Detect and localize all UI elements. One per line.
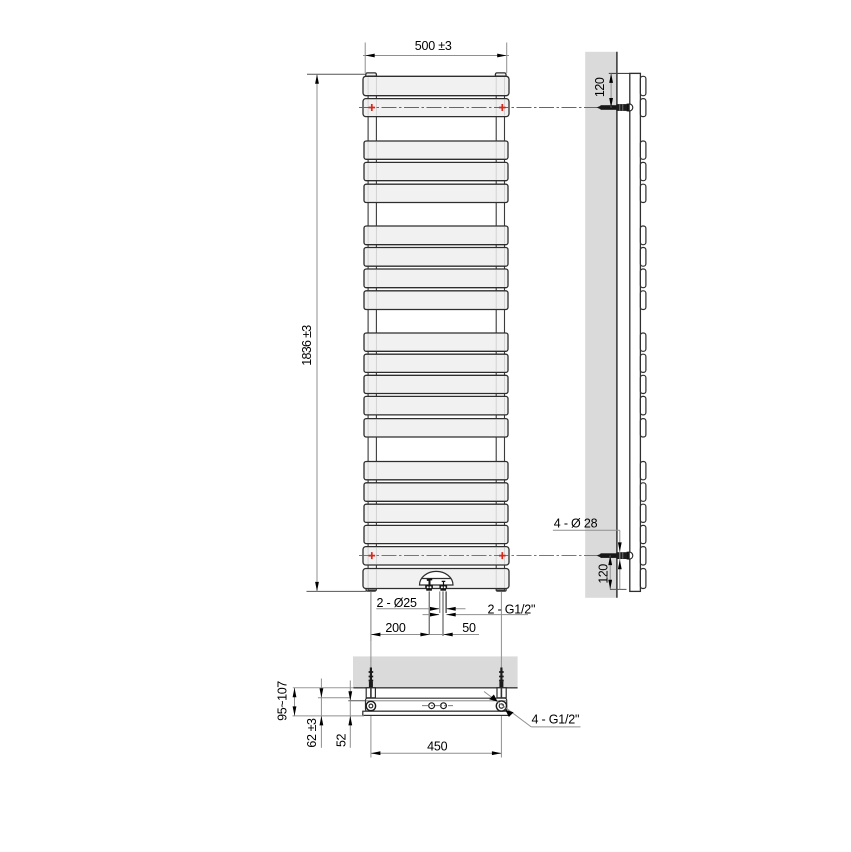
svg-text:52: 52 xyxy=(335,734,349,748)
svg-text:4 - G1/2": 4 - G1/2" xyxy=(532,713,580,727)
svg-text:2 - G1/2": 2 - G1/2" xyxy=(488,602,536,616)
svg-text:62 ±3: 62 ±3 xyxy=(305,718,319,748)
svg-text:120: 120 xyxy=(597,564,611,584)
svg-text:50: 50 xyxy=(462,621,476,635)
svg-text:500 ±3: 500 ±3 xyxy=(415,39,452,53)
svg-text:4 - Ø 28: 4 - Ø 28 xyxy=(554,517,598,531)
svg-text:450: 450 xyxy=(427,740,448,754)
svg-text:1836 ±3: 1836 ±3 xyxy=(300,325,314,366)
svg-text:200: 200 xyxy=(385,621,406,635)
svg-text:120: 120 xyxy=(593,77,607,97)
svg-text:2 - Ø25: 2 - Ø25 xyxy=(377,596,418,610)
svg-text:95~107: 95~107 xyxy=(276,681,290,721)
